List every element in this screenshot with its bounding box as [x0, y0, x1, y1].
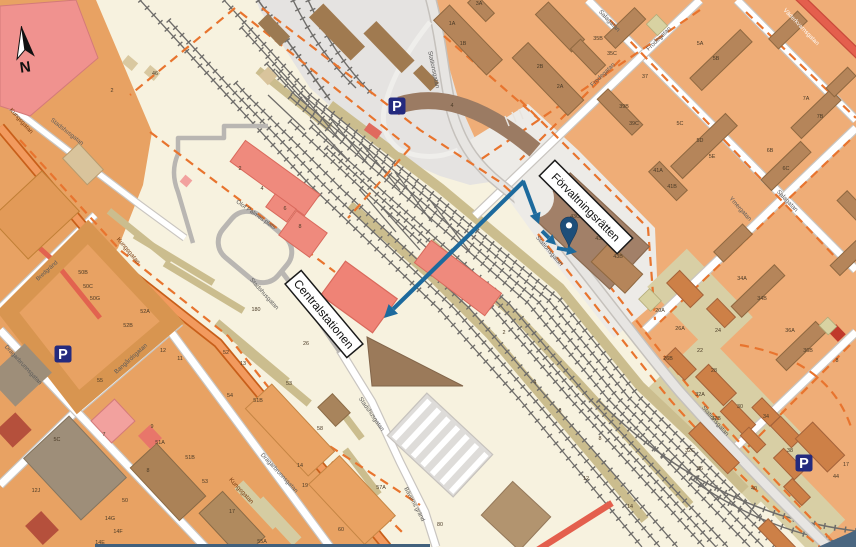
- svg-text:39C: 39C: [629, 121, 639, 127]
- svg-text:14: 14: [297, 463, 303, 469]
- svg-text:8: 8: [299, 224, 302, 230]
- svg-text:14: 14: [627, 504, 633, 510]
- svg-text:4: 4: [534, 380, 537, 386]
- svg-text:20A: 20A: [655, 308, 665, 314]
- svg-text:50G: 50G: [90, 296, 100, 302]
- svg-text:34: 34: [763, 414, 769, 420]
- svg-text:36: 36: [697, 466, 703, 472]
- svg-text:8: 8: [147, 468, 150, 474]
- svg-text:1B: 1B: [460, 41, 467, 47]
- svg-text:30: 30: [737, 404, 743, 410]
- svg-text:39B: 39B: [619, 104, 629, 110]
- svg-text:7A: 7A: [803, 96, 810, 102]
- svg-text:22: 22: [697, 348, 703, 354]
- svg-text:52B: 52B: [123, 323, 133, 329]
- svg-text:180: 180: [252, 307, 261, 313]
- svg-text:51B: 51B: [253, 398, 263, 404]
- svg-text:51B: 51B: [185, 455, 195, 461]
- svg-text:5C: 5C: [677, 121, 684, 127]
- svg-text:13: 13: [240, 361, 246, 367]
- svg-text:17: 17: [843, 462, 849, 468]
- svg-text:11: 11: [177, 356, 183, 362]
- svg-text:5D: 5D: [697, 138, 704, 144]
- svg-text:34B: 34B: [757, 296, 767, 302]
- svg-text:26B: 26B: [663, 356, 673, 362]
- svg-text:32A: 32A: [695, 392, 705, 398]
- svg-text:28: 28: [711, 368, 717, 374]
- svg-text:6B: 6B: [767, 148, 774, 154]
- svg-text:35B: 35B: [593, 36, 603, 42]
- svg-text:6: 6: [559, 408, 562, 414]
- svg-text:50B: 50B: [78, 270, 88, 276]
- svg-text:60: 60: [338, 527, 344, 533]
- svg-text:32B: 32B: [711, 416, 721, 422]
- svg-text:5C: 5C: [54, 437, 61, 443]
- svg-text:12: 12: [583, 476, 589, 482]
- svg-text:7: 7: [103, 432, 106, 438]
- svg-text:5B: 5B: [713, 56, 720, 62]
- svg-text:50: 50: [122, 498, 128, 504]
- svg-text:4: 4: [451, 103, 454, 109]
- svg-text:P: P: [799, 456, 809, 472]
- svg-text:34A: 34A: [737, 276, 747, 282]
- svg-text:19: 19: [302, 483, 308, 489]
- svg-text:36B: 36B: [803, 348, 813, 354]
- svg-text:2: 2: [239, 166, 242, 172]
- svg-text:6: 6: [284, 206, 287, 212]
- svg-text:41B: 41B: [667, 184, 677, 190]
- svg-text:37: 37: [642, 74, 648, 80]
- svg-text:35C: 35C: [607, 51, 617, 57]
- svg-text:2B: 2B: [537, 64, 544, 70]
- svg-text:12J: 12J: [32, 488, 41, 494]
- svg-text:12: 12: [160, 348, 166, 354]
- svg-text:26: 26: [303, 341, 309, 347]
- svg-text:36A: 36A: [785, 328, 795, 334]
- svg-text:41A: 41A: [653, 168, 663, 174]
- svg-text:43B: 43B: [613, 254, 623, 260]
- svg-text:52: 52: [223, 350, 229, 356]
- svg-text:32C: 32C: [685, 448, 695, 454]
- svg-text:5A: 5A: [697, 41, 704, 47]
- svg-text:26A: 26A: [675, 326, 685, 332]
- svg-text:8: 8: [599, 436, 602, 442]
- svg-text:58: 58: [317, 426, 323, 432]
- svg-text:2: 2: [503, 330, 506, 336]
- svg-text:53: 53: [202, 479, 208, 485]
- svg-text:52A: 52A: [140, 309, 150, 315]
- svg-text:17: 17: [229, 509, 235, 515]
- svg-text:8: 8: [836, 358, 839, 364]
- svg-text:P: P: [58, 347, 68, 363]
- svg-text:38: 38: [787, 448, 793, 454]
- svg-text:5E: 5E: [709, 154, 716, 160]
- svg-text:57A: 57A: [376, 485, 386, 491]
- svg-text:3A: 3A: [476, 1, 483, 7]
- svg-text:2A: 2A: [557, 84, 564, 90]
- svg-text:44: 44: [833, 474, 839, 480]
- svg-text:7B: 7B: [817, 114, 824, 120]
- svg-text:46: 46: [152, 71, 158, 77]
- svg-text:9: 9: [151, 424, 154, 430]
- svg-text:40: 40: [751, 486, 757, 492]
- svg-text:50C: 50C: [83, 284, 93, 290]
- svg-text:14G: 14G: [105, 516, 115, 522]
- svg-text:51A: 51A: [155, 440, 165, 446]
- svg-text:24: 24: [715, 328, 721, 334]
- svg-text:54: 54: [227, 393, 233, 399]
- svg-text:1A: 1A: [449, 21, 456, 27]
- svg-text:53: 53: [286, 381, 292, 387]
- svg-text:6C: 6C: [783, 166, 790, 172]
- svg-text:14F: 14F: [113, 529, 123, 535]
- svg-text:2: 2: [111, 88, 114, 94]
- svg-text:4: 4: [261, 186, 264, 192]
- svg-text:80: 80: [437, 522, 443, 528]
- svg-text:P: P: [392, 99, 402, 115]
- svg-text:55: 55: [97, 378, 103, 384]
